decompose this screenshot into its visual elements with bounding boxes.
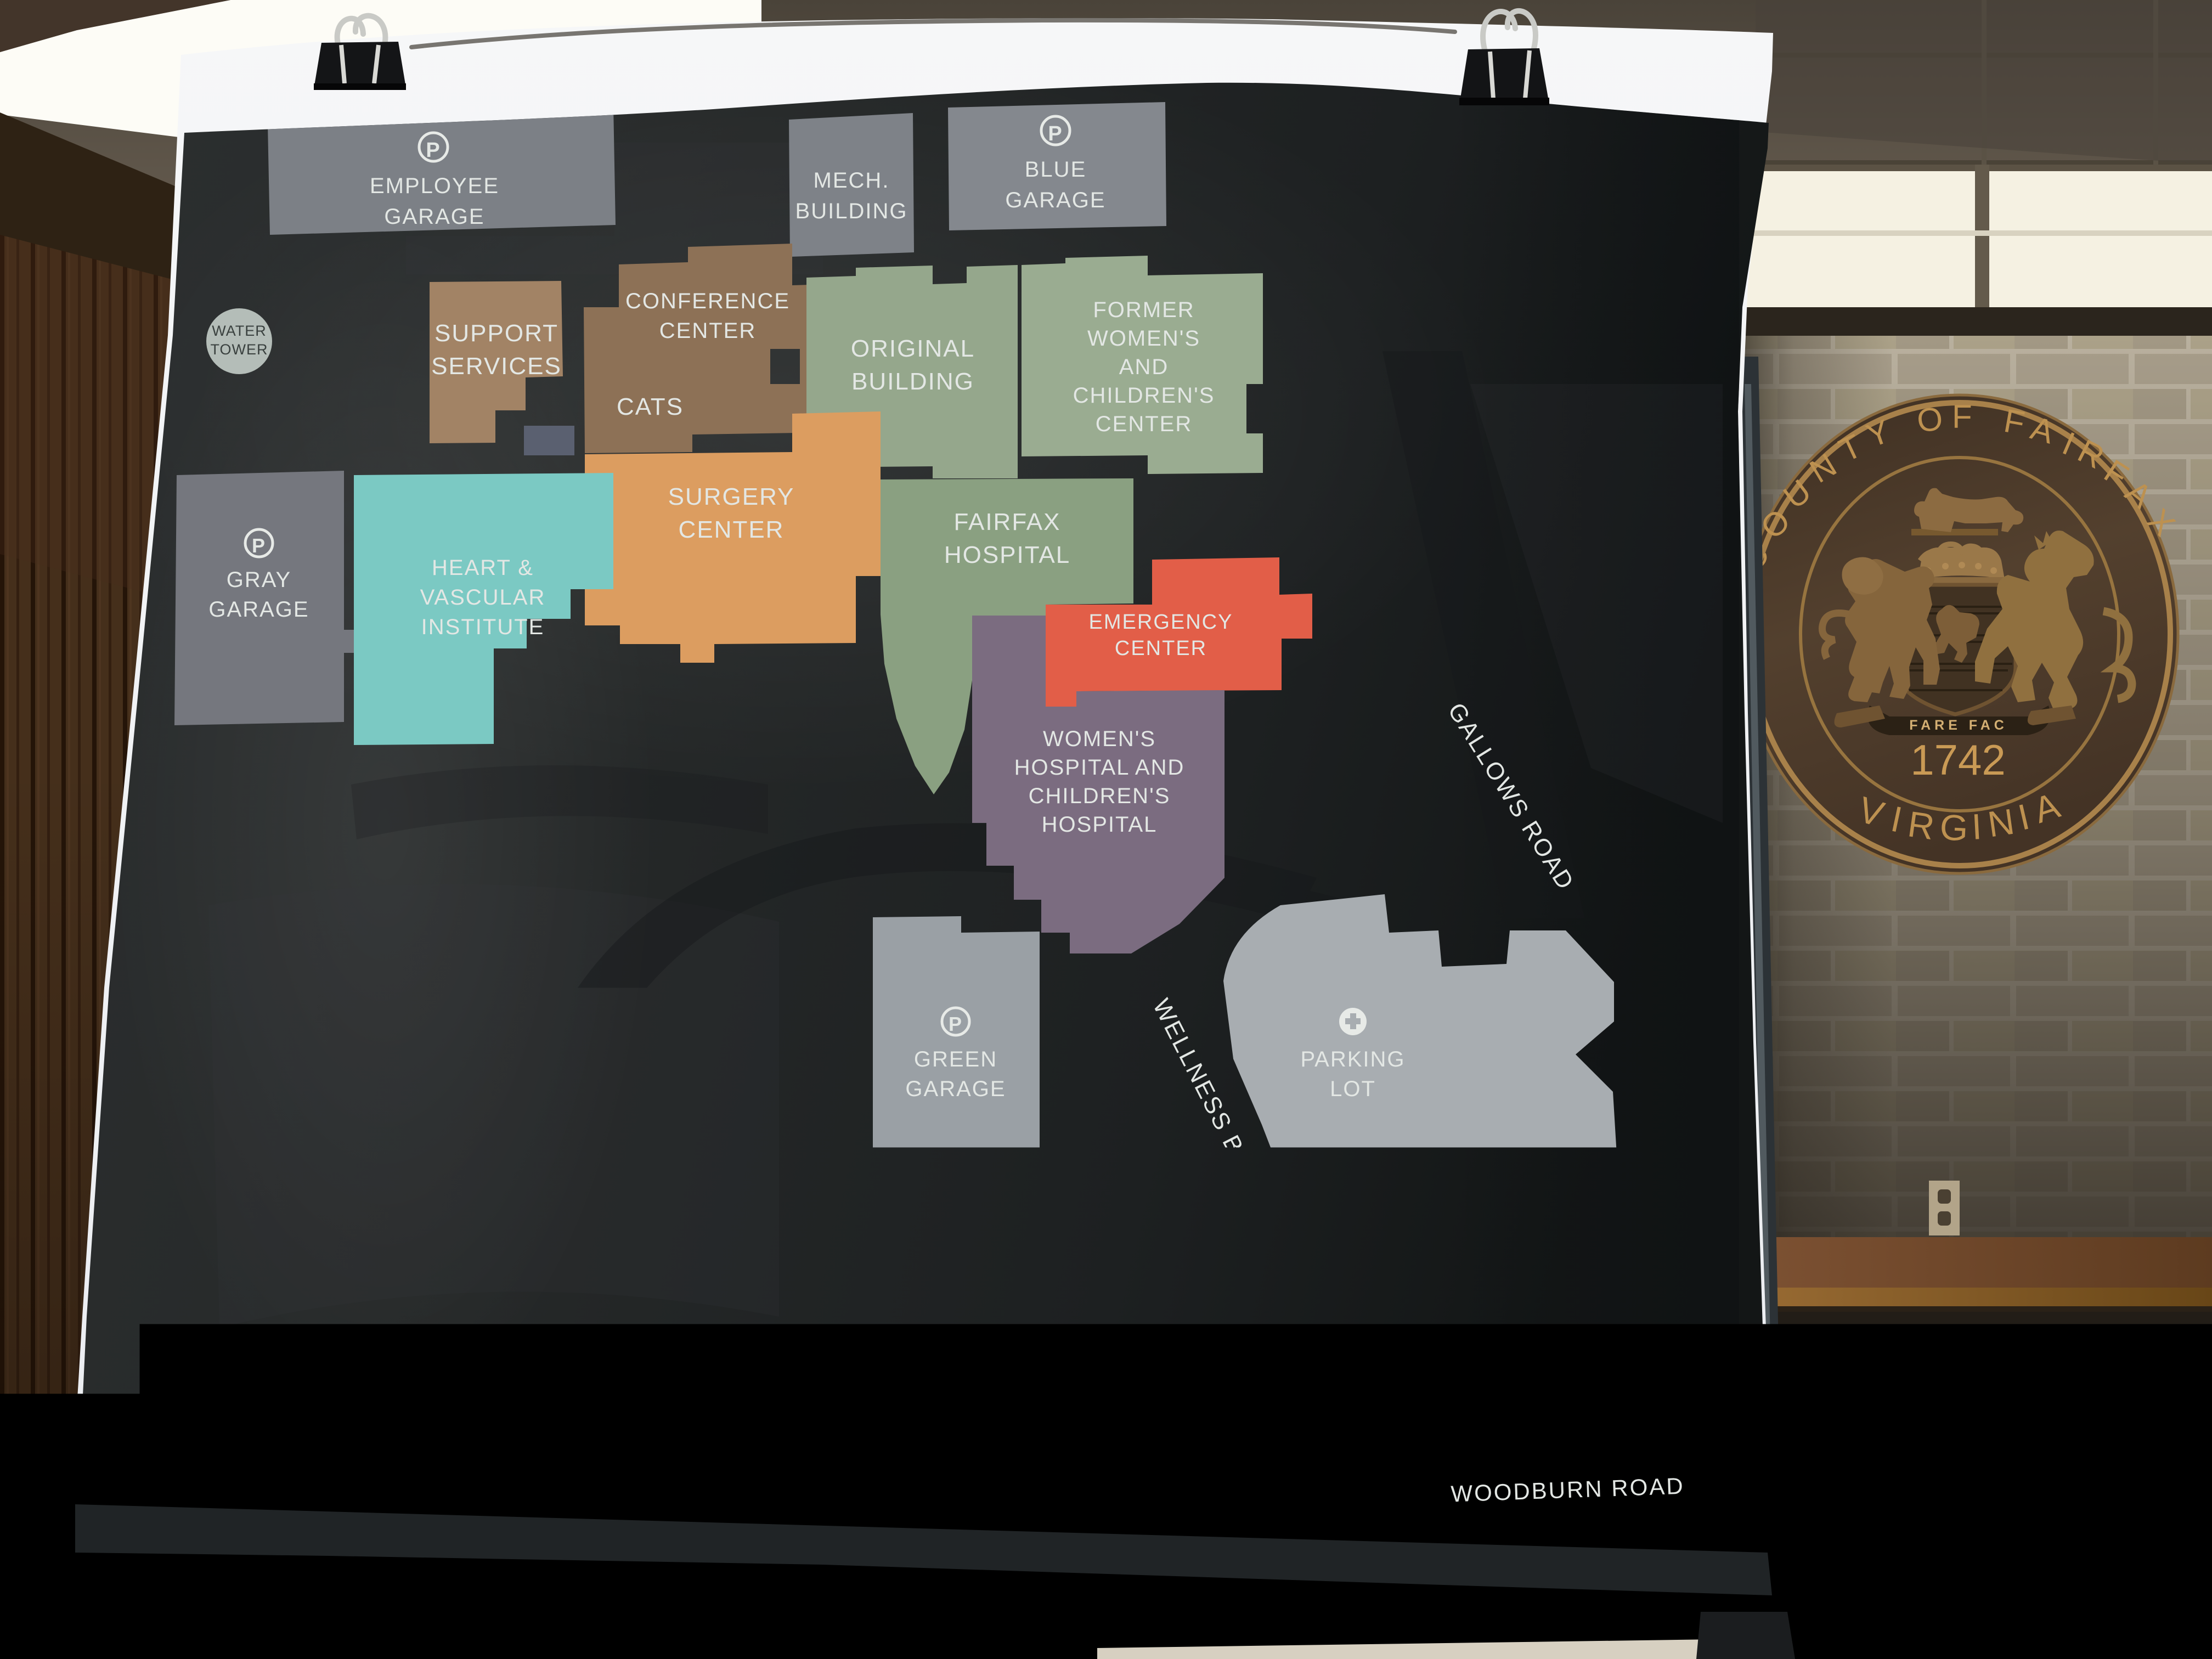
svg-text:1742: 1742 <box>1910 736 2006 784</box>
svg-text:GARAGE: GARAGE <box>208 597 309 622</box>
svg-text:G: G <box>1939 806 1969 849</box>
svg-text:FAIRFAX: FAIRFAX <box>954 509 1061 535</box>
svg-text:FARE FAC: FARE FAC <box>1909 718 2008 733</box>
svg-text:VASCULAR: VASCULAR <box>420 585 546 610</box>
svg-text:SERVICES: SERVICES <box>431 353 562 380</box>
svg-text:CENTER: CENTER <box>1115 637 1207 660</box>
svg-text:WOMEN'S: WOMEN'S <box>1043 727 1156 751</box>
svg-text:O: O <box>1915 400 1944 439</box>
svg-text:GARAGE: GARAGE <box>1005 188 1105 212</box>
svg-text:P: P <box>252 534 266 557</box>
svg-text:SURGERY: SURGERY <box>668 483 795 510</box>
svg-text:AND: AND <box>1119 355 1169 379</box>
svg-text:WOMEN'S: WOMEN'S <box>1087 326 1200 351</box>
svg-text:GARAGE: GARAGE <box>905 1077 1006 1101</box>
svg-text:WATER: WATER <box>212 323 267 339</box>
svg-text:R: R <box>1905 803 1937 847</box>
svg-text:P: P <box>949 1013 963 1035</box>
svg-text:CONFERENCE: CONFERENCE <box>625 289 790 313</box>
svg-text:HOSPITAL AND: HOSPITAL AND <box>1014 755 1185 780</box>
svg-text:MECH.: MECH. <box>814 168 890 193</box>
svg-text:BLUE: BLUE <box>1025 157 1087 182</box>
svg-text:EMERGENCY: EMERGENCY <box>1089 611 1233 634</box>
svg-text:BUILDING: BUILDING <box>851 368 974 395</box>
svg-text:GREEN: GREEN <box>914 1047 997 1071</box>
svg-text:PARKING: PARKING <box>1300 1047 1405 1071</box>
svg-text:LOT: LOT <box>1330 1077 1376 1101</box>
svg-text:HOSPITAL: HOSPITAL <box>1042 812 1158 837</box>
svg-text:F: F <box>1952 398 1972 435</box>
svg-text:GARAGE: GARAGE <box>384 205 484 229</box>
svg-text:INSTITUTE: INSTITUTE <box>421 615 545 639</box>
svg-text:HEART &: HEART & <box>432 556 534 580</box>
svg-text:CHILDREN'S: CHILDREN'S <box>1073 383 1215 408</box>
svg-text:BUILDING: BUILDING <box>795 199 908 223</box>
svg-text:P: P <box>1048 122 1063 145</box>
svg-text:SUPPORT: SUPPORT <box>435 320 558 347</box>
svg-text:CENTER: CENTER <box>1096 412 1192 436</box>
svg-text:I: I <box>1971 806 1983 847</box>
svg-text:CENTER: CENTER <box>679 516 785 543</box>
svg-text:P: P <box>426 139 441 162</box>
svg-text:HOSPITAL: HOSPITAL <box>944 541 1070 568</box>
svg-text:CENTER: CENTER <box>659 319 756 343</box>
svg-text:GRAY: GRAY <box>227 568 291 592</box>
svg-text:ORIGINAL: ORIGINAL <box>851 335 975 362</box>
svg-text:TOWER: TOWER <box>211 341 268 358</box>
svg-text:N: N <box>1985 801 2017 845</box>
svg-text:CATS: CATS <box>617 393 684 420</box>
svg-text:EMPLOYEE: EMPLOYEE <box>370 174 499 198</box>
svg-text:FORMER: FORMER <box>1093 298 1194 322</box>
svg-text:CHILDREN'S: CHILDREN'S <box>1029 784 1171 808</box>
